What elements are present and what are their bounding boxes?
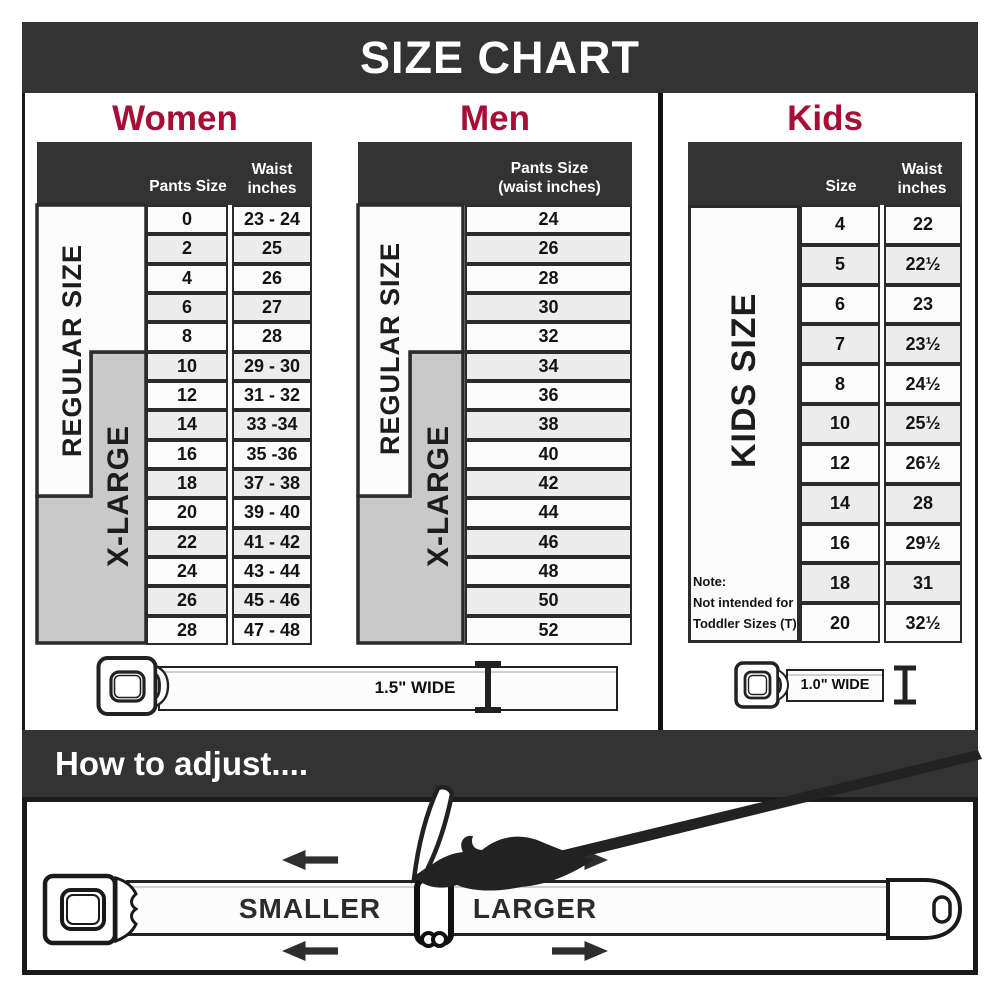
kids-size-label: KIDS SIZE	[692, 215, 796, 545]
larger-label: LARGER	[465, 893, 605, 923]
table-cell: 30	[465, 293, 632, 322]
men-xlarge-label: X-LARGE	[412, 352, 465, 640]
table-row: 1025½	[800, 404, 962, 444]
table-cell: 27	[232, 293, 312, 322]
table-cell: 41 - 42	[232, 528, 312, 557]
table-row: 26	[465, 234, 632, 263]
table-cell: 24	[146, 557, 228, 586]
table-row: 225	[146, 234, 314, 263]
panel-divider	[658, 93, 663, 730]
table-cell: 8	[146, 322, 228, 351]
table-cell: 38	[465, 410, 632, 439]
table-cell: 26	[146, 586, 228, 615]
men-heading: Men	[360, 99, 630, 139]
table-cell: 8	[800, 364, 880, 404]
table-row: 38	[465, 410, 632, 439]
table-cell: 32	[465, 322, 632, 351]
table-cell: 40	[465, 440, 632, 469]
table-row: 623	[800, 285, 962, 325]
table-cell: 28	[146, 616, 228, 645]
table-cell: 28	[884, 484, 962, 524]
table-row: 627	[146, 293, 314, 322]
table-cell: 7	[800, 324, 880, 364]
table-cell: 22	[146, 528, 228, 557]
table-cell: 6	[146, 293, 228, 322]
table-cell: 32½	[884, 603, 962, 643]
table-cell: 26	[465, 234, 632, 263]
table-cell: 43 - 44	[232, 557, 312, 586]
table-cell: 22	[884, 205, 962, 245]
adult-belt-width-label: 1.5" WIDE	[350, 678, 480, 698]
table-row: 40	[465, 440, 632, 469]
table-row: 34	[465, 352, 632, 381]
table-cell: 10	[146, 352, 228, 381]
table-cell: 46	[465, 528, 632, 557]
table-cell: 29 - 30	[232, 352, 312, 381]
table-row: 28	[465, 264, 632, 293]
table-row: 32	[465, 322, 632, 351]
table-cell: 39 - 40	[232, 498, 312, 527]
table-cell: 33 -34	[232, 410, 312, 439]
table-cell: 2	[146, 234, 228, 263]
table-cell: 26	[232, 264, 312, 293]
table-cell: 4	[146, 264, 228, 293]
table-row: 52	[465, 616, 632, 645]
table-cell: 26½	[884, 444, 962, 484]
table-row: 2241 - 42	[146, 528, 314, 557]
adjust-heading: How to adjust....	[55, 745, 308, 783]
adult-seatbelt-buckle-icon	[96, 654, 170, 718]
table-cell: 45 - 46	[232, 586, 312, 615]
women-waist-header: Waist inches	[230, 142, 314, 204]
table-row: 1635 -36	[146, 440, 314, 469]
kids-note: Note: Not intended for Toddler Sizes (T)	[693, 572, 799, 634]
table-cell: 37 - 38	[232, 469, 312, 498]
kids-width-ruler-icon	[891, 664, 919, 706]
table-row: 422	[800, 205, 962, 245]
table-row: 2645 - 46	[146, 586, 314, 615]
men-table-rows: 242628303234363840424446485052	[465, 205, 632, 645]
page-title: SIZE CHART	[360, 32, 640, 84]
smaller-label: SMALLER	[235, 893, 385, 923]
women-pants-size-header: Pants Size	[146, 142, 230, 204]
table-cell: 12	[800, 444, 880, 484]
men-pants-size-header: Pants Size (waist inches)	[467, 142, 632, 204]
table-cell: 16	[146, 440, 228, 469]
table-row: 1231 - 32	[146, 381, 314, 410]
table-row: 2443 - 44	[146, 557, 314, 586]
table-cell: 36	[465, 381, 632, 410]
table-row: 824½	[800, 364, 962, 404]
table-row: 24	[465, 205, 632, 234]
table-row: 1428	[800, 484, 962, 524]
table-cell: 25½	[884, 404, 962, 444]
table-row: 50	[465, 586, 632, 615]
table-cell: 28	[465, 264, 632, 293]
table-row: 44	[465, 498, 632, 527]
table-row: 828	[146, 322, 314, 351]
adjust-seatbelt-buckle-icon	[42, 872, 138, 948]
table-cell: 31 - 32	[232, 381, 312, 410]
table-cell: 23 - 24	[232, 205, 312, 234]
table-cell: 16	[800, 524, 880, 564]
table-cell: 22½	[884, 245, 962, 285]
table-row: 426	[146, 264, 314, 293]
kids-heading: Kids	[690, 99, 960, 139]
table-cell: 50	[465, 586, 632, 615]
table-cell: 18	[800, 563, 880, 603]
table-cell: 12	[146, 381, 228, 410]
table-row: 2039 - 40	[146, 498, 314, 527]
table-row: 023 - 24	[146, 205, 314, 234]
table-cell: 52	[465, 616, 632, 645]
table-row: 1433 -34	[146, 410, 314, 439]
women-heading: Women	[40, 99, 310, 139]
kids-belt-width-label: 1.0" WIDE	[792, 677, 878, 695]
table-row: 1831	[800, 563, 962, 603]
size-chart-infographic: SIZE CHART Women Pants Size Waist inches…	[0, 0, 1000, 1000]
table-row: 42	[465, 469, 632, 498]
table-cell: 47 - 48	[232, 616, 312, 645]
table-row: 2847 - 48	[146, 616, 314, 645]
table-row: 522½	[800, 245, 962, 285]
table-cell: 24½	[884, 364, 962, 404]
table-cell: 10	[800, 404, 880, 444]
kids-table-rows: 422522½623723½824½1025½1226½14281629½183…	[800, 205, 962, 643]
table-cell: 34	[465, 352, 632, 381]
table-cell: 48	[465, 557, 632, 586]
table-row: 1629½	[800, 524, 962, 564]
table-row: 36	[465, 381, 632, 410]
women-xlarge-label: X-LARGE	[92, 352, 146, 640]
women-table-rows: 023 - 242254266278281029 - 301231 - 3214…	[146, 205, 314, 645]
table-row: 1837 - 38	[146, 469, 314, 498]
table-cell: 25	[232, 234, 312, 263]
table-row: 723½	[800, 324, 962, 364]
table-cell: 24	[465, 205, 632, 234]
adult-width-ruler-icon	[472, 659, 504, 715]
table-cell: 35 -36	[232, 440, 312, 469]
table-cell: 23½	[884, 324, 962, 364]
hand-pulling-strap-icon	[320, 742, 1000, 892]
kids-waist-header: Waist inches	[882, 142, 962, 204]
table-row: 30	[465, 293, 632, 322]
table-cell: 29½	[884, 524, 962, 564]
title-bar: SIZE CHART	[22, 22, 978, 93]
table-cell: 4	[800, 205, 880, 245]
table-cell: 20	[800, 603, 880, 643]
table-cell: 14	[800, 484, 880, 524]
table-cell: 18	[146, 469, 228, 498]
table-cell: 5	[800, 245, 880, 285]
table-cell: 44	[465, 498, 632, 527]
men-regular-size-label: REGULAR SIZE	[360, 210, 420, 486]
table-cell: 42	[465, 469, 632, 498]
table-row: 48	[465, 557, 632, 586]
table-row: 1029 - 30	[146, 352, 314, 381]
table-row: 2032½	[800, 603, 962, 643]
kids-size-header: Size	[802, 142, 880, 204]
table-cell: 6	[800, 285, 880, 325]
table-cell: 20	[146, 498, 228, 527]
table-cell: 0	[146, 205, 228, 234]
table-row: 46	[465, 528, 632, 557]
table-cell: 23	[884, 285, 962, 325]
table-cell: 31	[884, 563, 962, 603]
table-cell: 28	[232, 322, 312, 351]
table-row: 1226½	[800, 444, 962, 484]
table-cell: 14	[146, 410, 228, 439]
kids-seatbelt-buckle-icon	[734, 660, 792, 710]
